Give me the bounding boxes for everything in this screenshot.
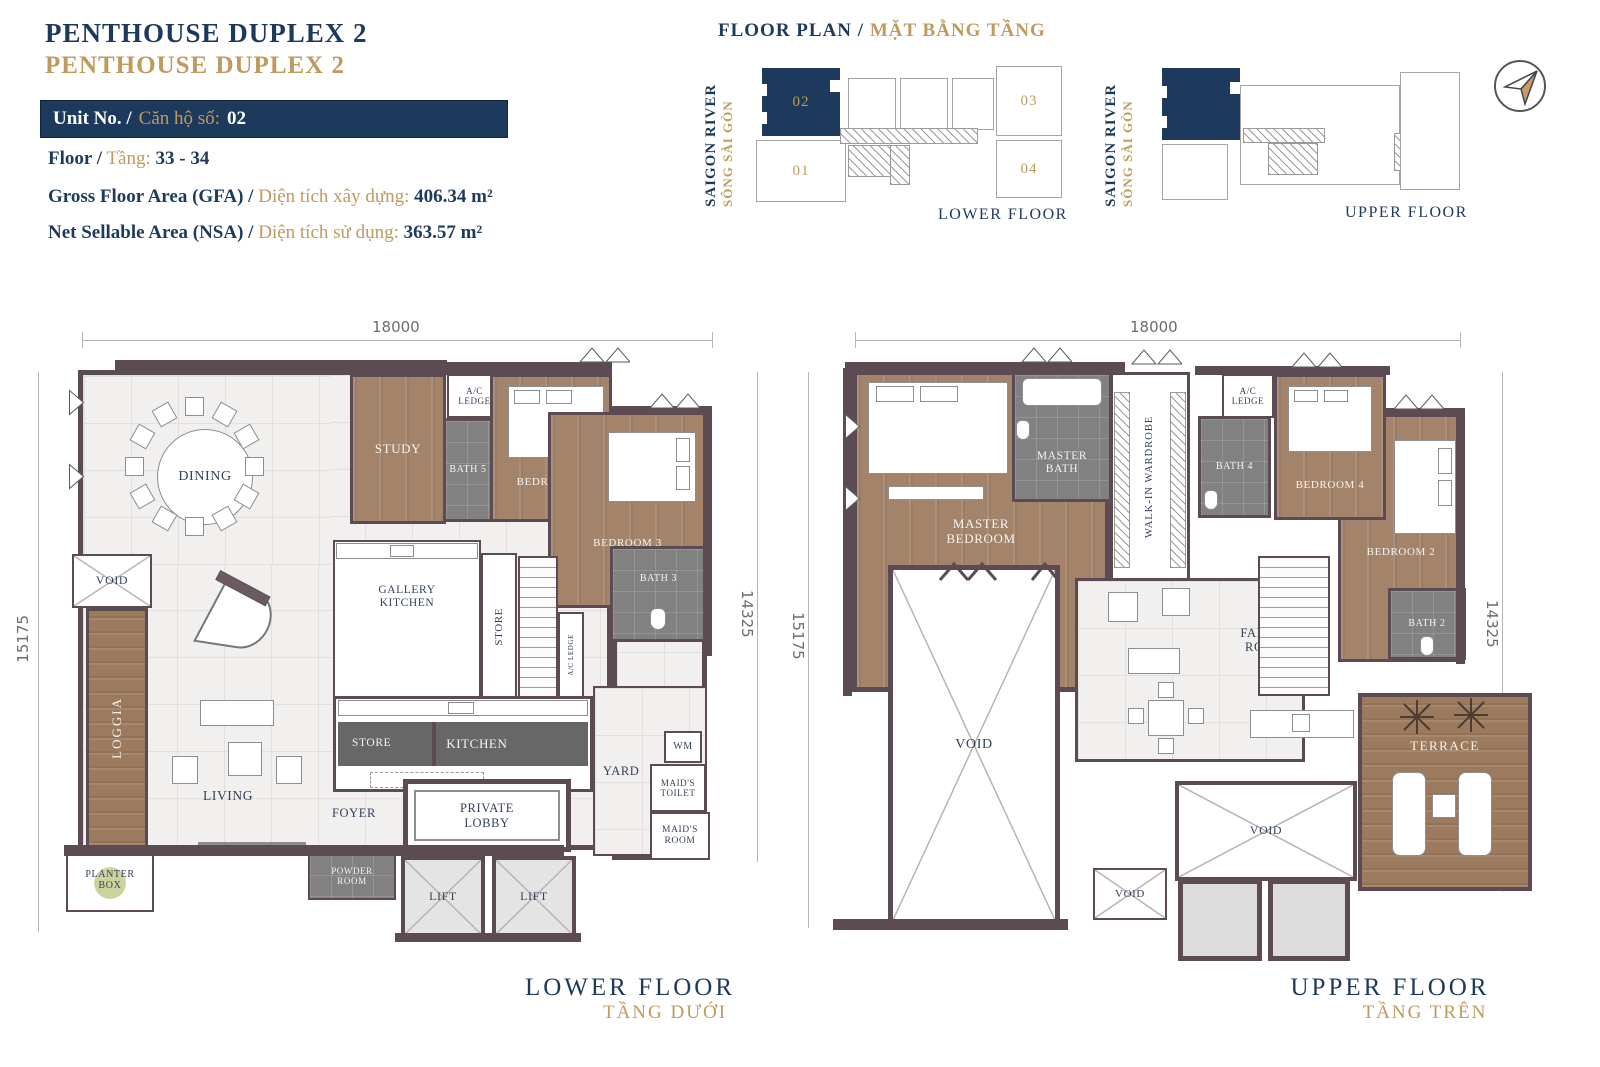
bench — [888, 486, 984, 500]
outer-wall — [115, 360, 447, 372]
room-store-tall: STORE — [481, 553, 517, 701]
window-icon — [1290, 352, 1342, 373]
window-icon — [1392, 394, 1444, 415]
keyplan-title-vi: MẶT BẰNG TẦNG — [870, 20, 1046, 41]
floor-row: Floor / Tầng: 33 - 34 — [48, 148, 209, 170]
pillow — [1438, 448, 1452, 474]
room-label: LIFT — [429, 890, 457, 904]
dim-tick — [712, 332, 713, 348]
room-loggia: LOGGIA — [86, 608, 148, 848]
floor-label-en: Floor / — [48, 148, 102, 169]
room-study: STUDY — [350, 374, 446, 524]
keyplan-upper-outline — [1162, 144, 1228, 200]
room-label: YARD — [603, 764, 639, 778]
room-label: VOID — [1250, 824, 1282, 838]
floor-value: 33 - 34 — [156, 148, 210, 169]
room-label: STUDY — [375, 442, 421, 457]
room-void-small: VOID — [1093, 868, 1167, 920]
keyplan-notch — [757, 112, 767, 124]
keyplan-notch — [1157, 86, 1167, 98]
window-icon — [578, 347, 630, 368]
room-label: VOID — [955, 737, 992, 753]
dim-line — [757, 372, 758, 862]
armchair — [276, 756, 302, 784]
floorplan-page: { "colors":{"navy":"#1d3a5c","gold":"#bf… — [0, 0, 1600, 1067]
room-label: STORE — [493, 608, 506, 646]
room-label-foyer: FOYER — [332, 806, 376, 820]
armchair — [1162, 588, 1190, 616]
room-bath5: BATH 5 — [443, 418, 493, 522]
upper-caption-en: UPPER FLOOR — [1250, 974, 1530, 1002]
pillow — [1324, 390, 1348, 402]
gfa-value: 406.34 m² — [414, 186, 493, 207]
room-planter-box: PLANTER BOX — [66, 848, 154, 912]
nsa-row: Net Sellable Area (NSA) / Diện tích sử d… — [48, 222, 482, 244]
room-label: LOGGIA — [110, 697, 125, 759]
river-label-vi: SÔNG SÀI GÒN — [1120, 62, 1136, 207]
dim-tick — [1460, 332, 1461, 348]
room-label: DINING — [178, 469, 231, 485]
outer-wall — [64, 845, 564, 856]
pillow — [876, 386, 914, 402]
keyplan-unit-02-label: 02 — [793, 94, 810, 111]
nsa-label-vi: Diện tích sử dụng: — [258, 222, 399, 243]
room-label: STORE — [352, 737, 391, 750]
river-label-vi: SÔNG SÀI GÒN — [720, 62, 736, 207]
room-lift-2: LIFT — [492, 856, 576, 938]
table — [1148, 700, 1184, 736]
keyplan-lower-caption: LOWER FLOOR — [938, 206, 1068, 224]
interior-wall — [432, 722, 436, 766]
room-label: BATH 4 — [1216, 461, 1253, 473]
window-icon — [1020, 347, 1072, 368]
upper-dim-right: 14325 — [1483, 600, 1501, 648]
room-wm: WM — [664, 731, 702, 763]
sofa — [200, 700, 274, 726]
window-zigzag-icon — [938, 562, 998, 587]
keyplan-lower-mid-unit — [900, 78, 948, 130]
dim-line — [855, 340, 1460, 341]
unit-label-vi: Căn hộ số: — [139, 108, 220, 130]
pillow — [514, 390, 540, 404]
river-label-en: SAIGON RIVER — [1103, 62, 1120, 207]
wardrobe-closet — [1114, 392, 1130, 568]
window-icon — [840, 485, 861, 521]
sink-icon — [1292, 714, 1310, 732]
room-maids-room: MAID'S ROOM — [650, 812, 710, 860]
dim-line — [82, 340, 712, 341]
keyplan-upper-outline — [1400, 72, 1460, 190]
dim-line — [808, 372, 809, 928]
chair — [1188, 708, 1204, 724]
upper-dim-top: 18000 — [1130, 318, 1178, 336]
river-label-upper: SAIGON RIVER SÔNG SÀI GÒN — [1103, 62, 1136, 207]
lift-shaft — [1178, 879, 1262, 961]
keyplan-lower-unit-01[interactable]: 01 — [756, 140, 846, 202]
nsa-value: 363.57 m² — [404, 222, 483, 243]
room-label: WALK-IN WARDROBE — [1144, 402, 1156, 552]
room-label: PRIVATE LOBBY — [447, 801, 527, 830]
pillow — [1438, 480, 1452, 506]
room-maids-toilet: MAID'S TOILET — [650, 764, 706, 812]
window-icon — [840, 413, 861, 449]
page-title-vi: PENTHOUSE DUPLEX 2 — [45, 52, 345, 80]
room-label: BEDROOM 4 — [1296, 479, 1365, 492]
lift-shaft — [1268, 879, 1350, 961]
room-label: MASTER BATH — [1027, 450, 1097, 476]
gfa-row: Gross Floor Area (GFA) / Diện tích xây d… — [48, 186, 493, 208]
nsa-label-en: Net Sellable Area (NSA) / — [48, 222, 253, 243]
keyplan-title: FLOOR PLAN / MẶT BẰNG TẦNG — [718, 20, 1046, 42]
keyplan-unit-04-label: 04 — [1021, 161, 1038, 178]
upper-dim-left: 15175 — [789, 612, 807, 660]
room-ac-ledge-mid: A/C LEDGE — [558, 612, 584, 698]
lower-dim-right: 14325 — [738, 590, 756, 638]
upper-floor-caption: UPPER FLOOR TẦNG TRÊN — [1250, 974, 1530, 1024]
cooktop-icon — [448, 702, 474, 714]
room-powder: POWDER ROOM — [308, 852, 396, 900]
dim-tick — [82, 332, 83, 348]
room-label: BATH 3 — [640, 573, 677, 585]
room-label: MASTER BEDROOM — [926, 517, 1036, 547]
dim-line — [38, 372, 39, 932]
toilet-icon — [1016, 420, 1030, 440]
lower-floor-caption: LOWER FLOOR TẦNG DƯỚI — [500, 974, 760, 1024]
window-icon — [1130, 349, 1182, 370]
armchair — [172, 756, 198, 784]
plant-icon — [1452, 696, 1490, 739]
pillow — [546, 390, 572, 404]
window-icon — [64, 463, 85, 499]
room-label: POWDER ROOM — [325, 866, 379, 887]
room-label-living: LIVING — [203, 788, 253, 804]
keyplan-unit-03-label: 03 — [1021, 93, 1038, 110]
room-label: KITCHEN — [446, 737, 507, 752]
gfa-label-en: Gross Floor Area (GFA) / — [48, 186, 253, 207]
outer-wall — [703, 406, 712, 656]
cooktop-icon — [390, 545, 414, 557]
chair — [1158, 738, 1174, 754]
room-label: PLANTER BOX — [82, 869, 138, 892]
outer-wall — [833, 919, 1068, 930]
room-label: A/C LEDGE — [1224, 386, 1272, 407]
room-label: WM — [673, 741, 693, 753]
side-table — [1432, 794, 1456, 818]
room-label: MAID'S ROOM — [658, 825, 702, 847]
keyplan-notch — [757, 84, 767, 96]
bathtub-icon — [1022, 378, 1102, 406]
river-label-en: SAIGON RIVER — [703, 62, 720, 207]
pillow — [676, 466, 690, 490]
keyplan-hatch-block — [890, 145, 910, 185]
sofa — [1128, 648, 1180, 674]
chair — [1128, 708, 1144, 724]
room-label: VOID — [96, 574, 128, 588]
room-label: BATH 5 — [449, 464, 486, 476]
pillow — [676, 438, 690, 462]
room-void-lift: VOID — [1175, 781, 1357, 881]
keyplan-upper-caption: UPPER FLOOR — [1345, 204, 1468, 222]
room-ac-ledge-upper: A/C LEDGE — [1222, 374, 1274, 418]
room-label: TERRACE — [1410, 739, 1480, 754]
keyplan-corridor-hatch — [1243, 128, 1325, 143]
staircase-upper — [1258, 556, 1330, 696]
lower-caption-en: LOWER FLOOR — [500, 974, 760, 1002]
room-terrace: TERRACE — [1358, 693, 1532, 891]
keyplan-corridor-hatch — [840, 128, 978, 144]
chair — [185, 397, 204, 416]
outer-wall — [1456, 408, 1465, 664]
toilet-icon — [650, 608, 666, 630]
keyplan-lower-unit-02[interactable]: 02 — [762, 68, 840, 136]
keyplan-notch — [830, 80, 842, 92]
room-label: BEDROOM 2 — [1367, 546, 1436, 559]
unit-label-en: Unit No. / — [53, 108, 132, 130]
room-void-lower: VOID — [72, 554, 152, 608]
wardrobe-closet — [1170, 392, 1186, 568]
armchair — [1108, 592, 1138, 622]
room-label: VOID — [1115, 888, 1145, 901]
unit-value: 02 — [227, 108, 246, 130]
unit-number-bar: Unit No. / Căn hộ số: 02 — [40, 100, 508, 138]
window-zigzag-icon — [1030, 562, 1060, 587]
upper-caption-vi: TẦNG TRÊN — [1250, 1002, 1530, 1024]
chair — [245, 457, 264, 476]
lower-caption-vi: TẦNG DƯỚI — [500, 1002, 760, 1024]
keyplan-unit-01-label: 01 — [793, 163, 810, 180]
page-title-en: PENTHOUSE DUPLEX 2 — [45, 18, 368, 49]
kitchen-dark-counter: STORE KITCHEN — [338, 722, 588, 766]
window-icon — [648, 393, 700, 414]
room-private-lobby: PRIVATE LOBBY — [403, 779, 571, 852]
keyplan-lower-mid-unit — [848, 78, 896, 130]
keyplan-notch — [1157, 116, 1167, 128]
room-label: A/C LEDGE — [567, 634, 575, 676]
keyplan-lower-unit-03[interactable]: 03 — [996, 66, 1062, 136]
pillow — [1294, 390, 1318, 402]
keyplan-lower-mid-unit — [952, 78, 994, 130]
window-icon — [64, 389, 85, 425]
toilet-icon — [1420, 636, 1434, 656]
outer-wall — [395, 933, 581, 942]
keyplan-title-en: FLOOR PLAN / — [718, 20, 864, 41]
compass-icon — [1492, 58, 1548, 119]
keyplan-hatch-block — [848, 145, 896, 177]
keyplan-upper-unit-02[interactable] — [1162, 68, 1240, 140]
chair — [185, 517, 204, 536]
room-lift-1: LIFT — [401, 856, 485, 938]
lower-dim-left: 15175 — [14, 615, 32, 663]
room-gallery-kitchen: GALLERY KITCHEN — [333, 540, 481, 700]
pillow — [920, 386, 958, 402]
toilet-icon — [1204, 490, 1218, 510]
staircase — [518, 556, 558, 698]
room-label: LIFT — [520, 890, 548, 904]
river-label-lower: SAIGON RIVER SÔNG SÀI GÒN — [703, 62, 736, 207]
plant-icon — [1398, 698, 1436, 741]
coffee-table — [228, 742, 262, 776]
gfa-label-vi: Diện tích xây dựng: — [258, 186, 409, 207]
lounger — [1458, 772, 1492, 856]
keyplan-hatch-block — [1268, 143, 1318, 175]
dim-tick — [855, 332, 856, 348]
room-label: BATH 2 — [1408, 618, 1445, 630]
lower-dim-top: 18000 — [372, 318, 420, 336]
floor-label-vi: Tầng: — [106, 148, 150, 169]
room-label: MAID'S TOILET — [658, 778, 698, 799]
outer-wall — [845, 362, 1125, 373]
lounger — [1392, 772, 1426, 856]
room-label: GALLERY KITCHEN — [367, 584, 447, 610]
chair — [1158, 682, 1174, 698]
room-void-large: VOID — [888, 565, 1060, 925]
keyplan-lower-unit-04[interactable]: 04 — [996, 140, 1062, 198]
chair — [125, 457, 144, 476]
